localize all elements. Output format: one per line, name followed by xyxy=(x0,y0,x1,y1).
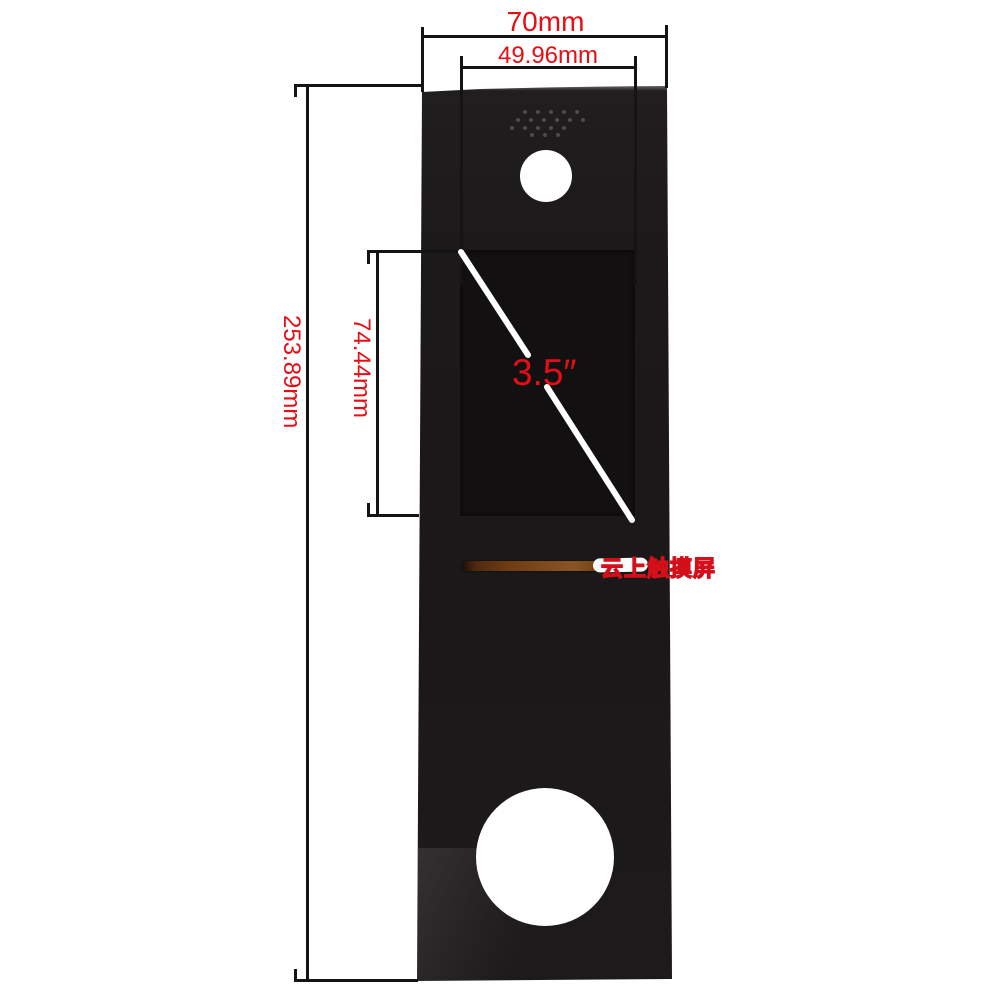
dim-7444mm-cap-bottom xyxy=(367,503,370,517)
dim-25389mm-tick-top xyxy=(295,84,423,87)
dim-7444mm-cap-top xyxy=(367,250,370,264)
dim-25389mm-tick-bottom xyxy=(295,979,418,982)
speaker-dot xyxy=(542,118,546,122)
overall-height-label: 253.89mm xyxy=(277,315,305,428)
dim-4996mm-tick-right xyxy=(634,56,637,285)
sensor-hole-cutout xyxy=(476,788,614,926)
product-photo-canvas: 70mm 49.96mm 253.89mm 74.44mm 3.5″ 云上触摸屏 xyxy=(0,0,1000,1000)
speaker-dot xyxy=(562,110,566,114)
speaker-dot xyxy=(516,118,520,122)
overall-width-label: 70mm xyxy=(424,6,667,38)
dim-7444mm-tick-top xyxy=(368,250,460,253)
speaker-dot xyxy=(562,126,566,130)
speaker-dot xyxy=(530,133,534,137)
dim-25389mm-cap-top xyxy=(294,84,297,97)
speaker-dot xyxy=(536,110,540,114)
dim-25389mm-cap-bottom xyxy=(294,969,297,982)
speaker-dot xyxy=(523,126,527,130)
dim-7444mm-tick-bottom xyxy=(368,514,419,517)
speaker-dot xyxy=(549,110,553,114)
speaker-dot xyxy=(536,126,540,130)
speaker-dot xyxy=(543,133,547,137)
speaker-dot xyxy=(575,110,579,114)
dim-4996mm-tick-left xyxy=(460,56,463,285)
inner-width-label: 49.96mm xyxy=(461,42,635,70)
flex-cable-strip xyxy=(462,561,602,571)
speaker-dot xyxy=(581,118,585,122)
screen-height-label: 74.44mm xyxy=(347,318,375,418)
speaker-dot xyxy=(523,110,527,114)
speaker-dot xyxy=(549,126,553,130)
watermark-text: 云上触摸屏 xyxy=(601,551,716,583)
speaker-dot xyxy=(529,118,533,122)
speaker-dot xyxy=(555,118,559,122)
camera-hole-cutout xyxy=(520,150,572,202)
dim-25389mm-line xyxy=(306,85,309,982)
speaker-dot xyxy=(556,133,560,137)
speaker-dot xyxy=(510,126,514,130)
dim-7444mm-line xyxy=(376,251,379,516)
speaker-dot xyxy=(568,118,572,122)
screen-diagonal-label: 3.5″ xyxy=(512,352,577,394)
